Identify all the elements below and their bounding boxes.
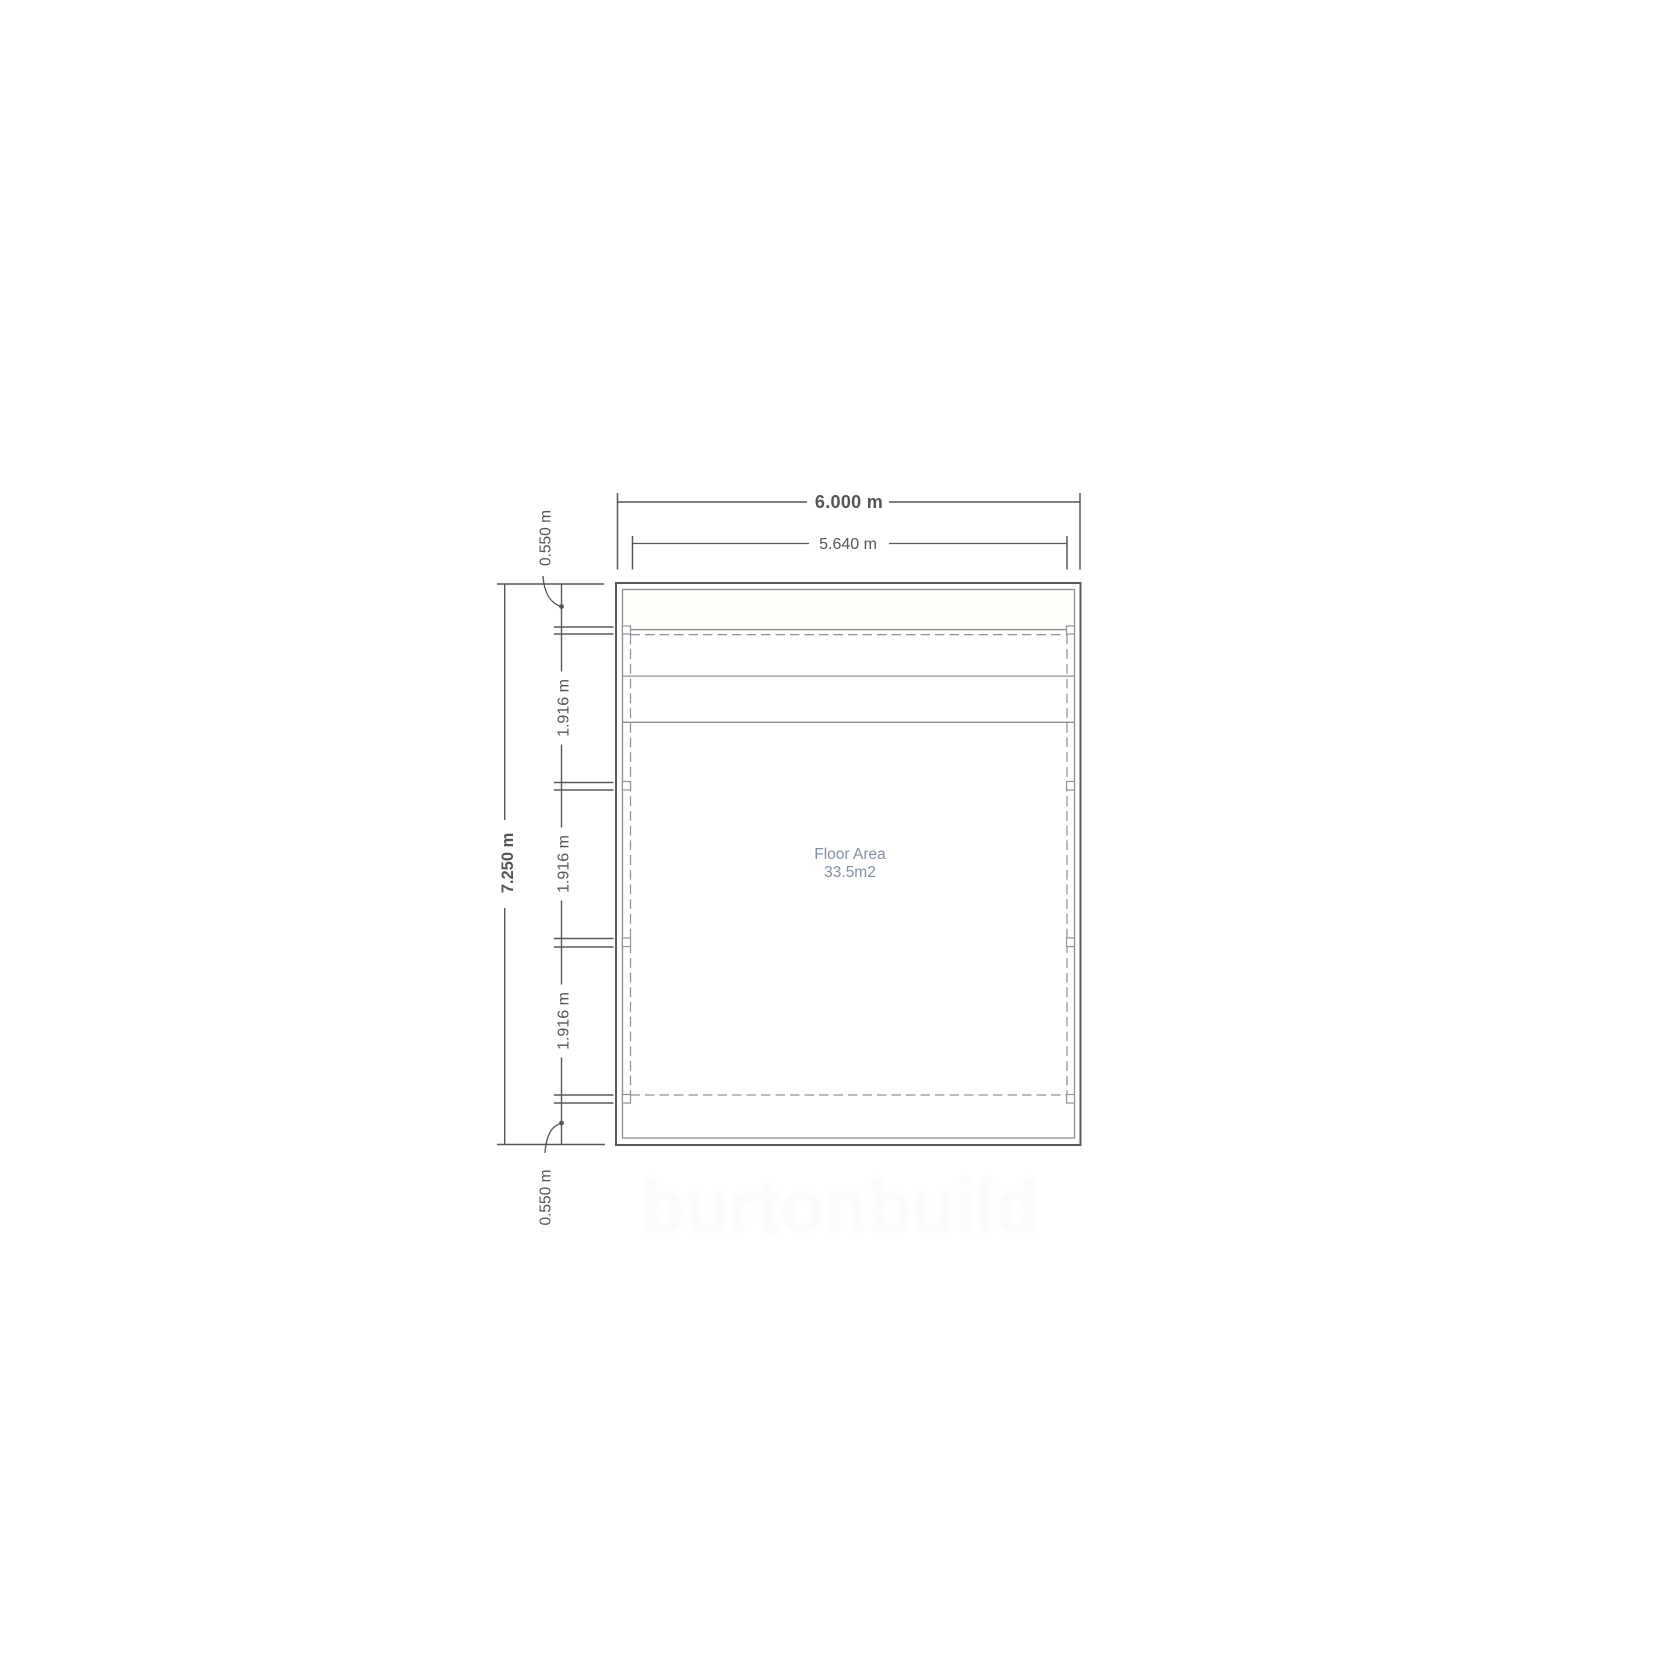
svg-text:7.250 m: 7.250 m bbox=[499, 833, 517, 894]
svg-text:6.000 m: 6.000 m bbox=[815, 492, 883, 512]
svg-text:1.916 m: 1.916 m bbox=[556, 679, 573, 737]
svg-text:0.550 m: 0.550 m bbox=[538, 1169, 555, 1225]
svg-text:5.640 m: 5.640 m bbox=[819, 536, 877, 553]
svg-text:burtonbuild: burtonbuild bbox=[641, 1165, 1039, 1248]
svg-text:Floor Area: Floor Area bbox=[814, 846, 886, 863]
svg-text:33.5m2: 33.5m2 bbox=[824, 864, 876, 881]
svg-text:1.916 m: 1.916 m bbox=[556, 835, 573, 893]
svg-text:1.916 m: 1.916 m bbox=[556, 992, 573, 1050]
svg-text:0.550 m: 0.550 m bbox=[538, 510, 555, 566]
